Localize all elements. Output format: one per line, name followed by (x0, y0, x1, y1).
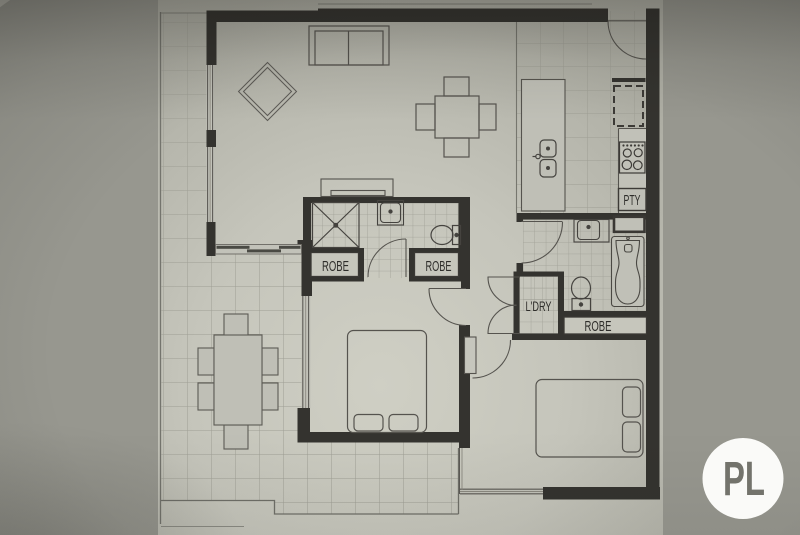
svg-text:PL: PL (723, 453, 765, 506)
